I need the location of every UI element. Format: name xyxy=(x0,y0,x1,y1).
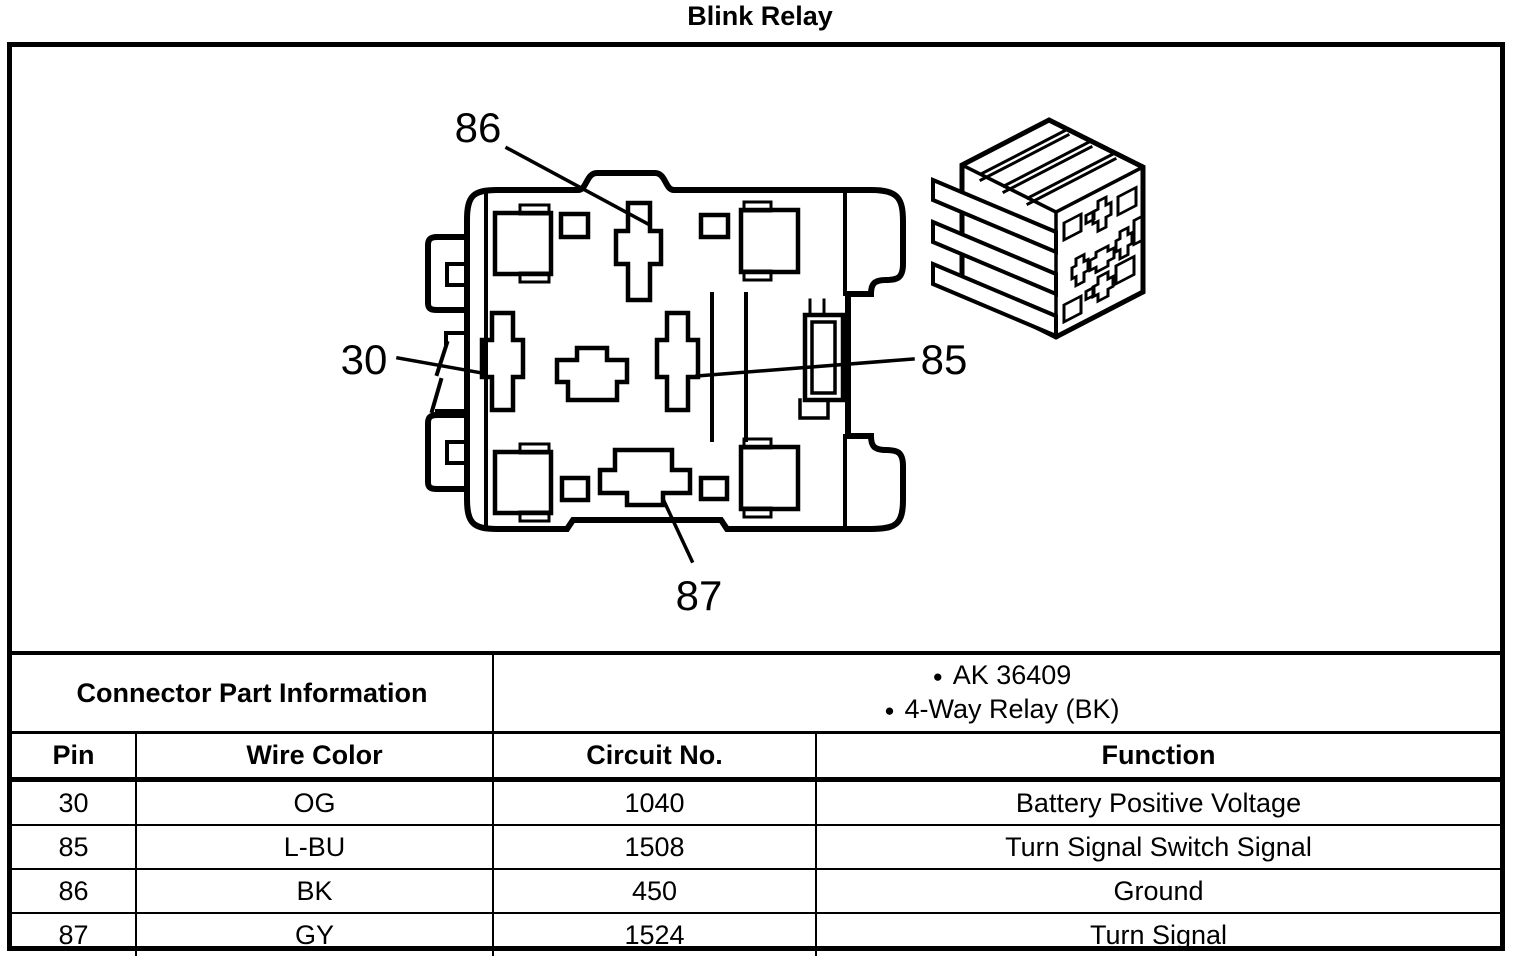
pin-label-86: 86 xyxy=(455,104,502,151)
cell-circuit-no: 1524 xyxy=(493,913,816,956)
pin-cavity-30 xyxy=(482,313,523,410)
connector-table: Connector Part Information ●AK 36409 ●4-… xyxy=(12,651,1500,956)
right-slot xyxy=(800,300,843,418)
part-info-bullet-2: ●4-Way Relay (BK) xyxy=(494,693,1500,727)
cell-function: Battery Positive Voltage xyxy=(816,780,1500,826)
header-function: Function xyxy=(816,733,1500,780)
cell-function: Turn Signal xyxy=(816,913,1500,956)
part-info-label: Connector Part Information xyxy=(12,653,493,733)
cell-circuit-no: 1040 xyxy=(493,780,816,826)
left-hook-bottom xyxy=(428,415,467,489)
header-circuit-no: Circuit No. xyxy=(493,733,816,780)
cell-circuit-no: 450 xyxy=(493,869,816,913)
header-wire-color: Wire Color xyxy=(136,733,493,780)
cavity-square-top-right xyxy=(741,202,798,280)
pin-cavity-87 xyxy=(600,450,690,505)
cavity-small-top-left xyxy=(561,214,588,237)
cell-wire-color: L-BU xyxy=(136,825,493,869)
face-outline xyxy=(467,173,903,529)
table-row: 87 GY 1524 Turn Signal xyxy=(12,913,1500,956)
cavity-square-bottom-right xyxy=(741,439,798,517)
cell-function: Turn Signal Switch Signal xyxy=(816,825,1500,869)
left-bracket-middle xyxy=(432,333,466,411)
cell-pin: 87 xyxy=(12,913,136,956)
header-pin: Pin xyxy=(12,733,136,780)
page-title: Blink Relay xyxy=(0,1,1520,32)
table-header-row: Pin Wire Color Circuit No. Function xyxy=(12,733,1500,780)
left-hook-top xyxy=(428,237,467,310)
part-info-bullet-1: ●AK 36409 xyxy=(494,659,1500,693)
cell-wire-color: GY xyxy=(136,913,493,956)
relay-isometric-view xyxy=(933,120,1143,337)
pin-cavity-center xyxy=(557,348,627,400)
connector-diagram: 86 30 85 87 xyxy=(12,47,1500,651)
table-row: 86 BK 450 Ground xyxy=(12,869,1500,913)
cavity-square-bottom-left xyxy=(495,444,551,521)
table-row: 85 L-BU 1508 Turn Signal Switch Signal xyxy=(12,825,1500,869)
pin-label-30: 30 xyxy=(341,336,388,383)
cavity-square-top-left xyxy=(495,205,551,282)
leader-line-87 xyxy=(663,499,692,561)
part-info-row: Connector Part Information ●AK 36409 ●4-… xyxy=(12,653,1500,733)
cavity-small-top-right xyxy=(701,215,728,237)
bullet-icon: ● xyxy=(923,661,953,693)
bullet-icon: ● xyxy=(874,695,904,727)
connector-face-view: 86 30 85 87 xyxy=(341,104,968,619)
cavity-small-bottom-right xyxy=(701,478,727,499)
pin-cavity-85 xyxy=(657,313,698,410)
cell-function: Ground xyxy=(816,869,1500,913)
cell-wire-color: OG xyxy=(136,780,493,826)
table-row: 30 OG 1040 Battery Positive Voltage xyxy=(12,780,1500,826)
part-info-bullets: ●AK 36409 ●4-Way Relay (BK) xyxy=(493,653,1500,733)
cell-pin: 86 xyxy=(12,869,136,913)
cell-circuit-no: 1508 xyxy=(493,825,816,869)
pin-label-87: 87 xyxy=(676,572,723,619)
content-frame: 86 30 85 87 xyxy=(7,42,1505,951)
cell-pin: 85 xyxy=(12,825,136,869)
cell-wire-color: BK xyxy=(136,869,493,913)
cavity-small-bottom-left xyxy=(562,478,588,500)
pin-label-85: 85 xyxy=(921,336,968,383)
cell-pin: 30 xyxy=(12,780,136,826)
